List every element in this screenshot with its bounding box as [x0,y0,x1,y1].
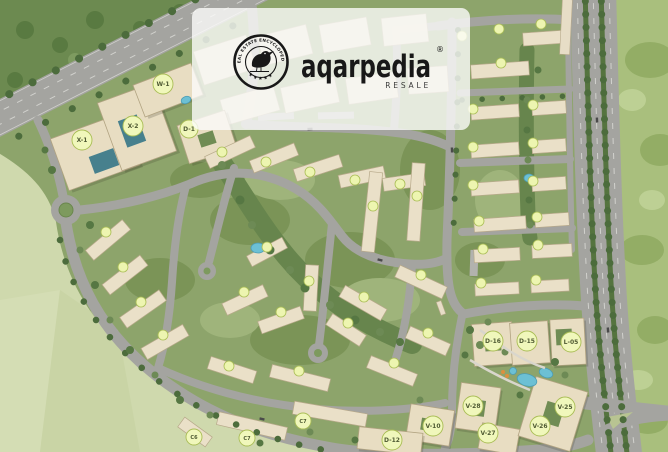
unit-label-c7a: C7 [239,430,255,446]
unit-label-v28: V-28 [463,396,483,416]
unit-label-d12: D-12 [382,430,402,450]
registered-trademark: ® [436,45,444,54]
unit-label-v27: V-27 [478,423,498,443]
unit-label-d16: D-16 [483,331,503,351]
svg-text:V-26: V-26 [532,423,547,430]
svg-text:D-15: D-15 [519,338,535,345]
svg-text:V-25: V-25 [557,404,572,411]
svg-text:D-12: D-12 [384,437,400,444]
unit-label-d15: D-15 [517,331,537,351]
roundabout [51,195,81,225]
masterplan-screenshot: W-1 X-2 X-1 D-1 D-16 D-15 L-05 V-28 V-25… [0,0,668,452]
svg-text:V-10: V-10 [425,423,440,430]
unit-label-c7b: C7 [295,413,311,429]
unit-label-v25: V-25 [555,397,575,417]
svg-text:X-1: X-1 [77,137,88,144]
svg-text:C6: C6 [190,435,198,441]
unit-label-l05: L-05 [561,332,581,352]
svg-text:W-1: W-1 [156,81,169,88]
unit-label-x2: X-2 [123,116,143,136]
unit-label-v26: V-26 [530,416,550,436]
svg-text:V-27: V-27 [480,430,495,437]
brand-tagline: RESALE [385,81,431,90]
svg-text:D-1: D-1 [183,126,195,133]
brand-wordmark: aqarpedia [301,49,431,85]
svg-text:C7: C7 [243,436,251,442]
svg-text:D-16: D-16 [485,338,501,345]
unit-label-c6: C6 [186,429,202,445]
unit-label-x1: X-1 [72,130,92,150]
svg-text:V-28: V-28 [465,403,480,410]
svg-text:C7: C7 [299,419,307,425]
unit-label-v10: V-10 [423,416,443,436]
svg-text:L-05: L-05 [564,339,579,346]
svg-text:X-2: X-2 [128,123,139,130]
unit-label-w1: W-1 [153,74,173,94]
